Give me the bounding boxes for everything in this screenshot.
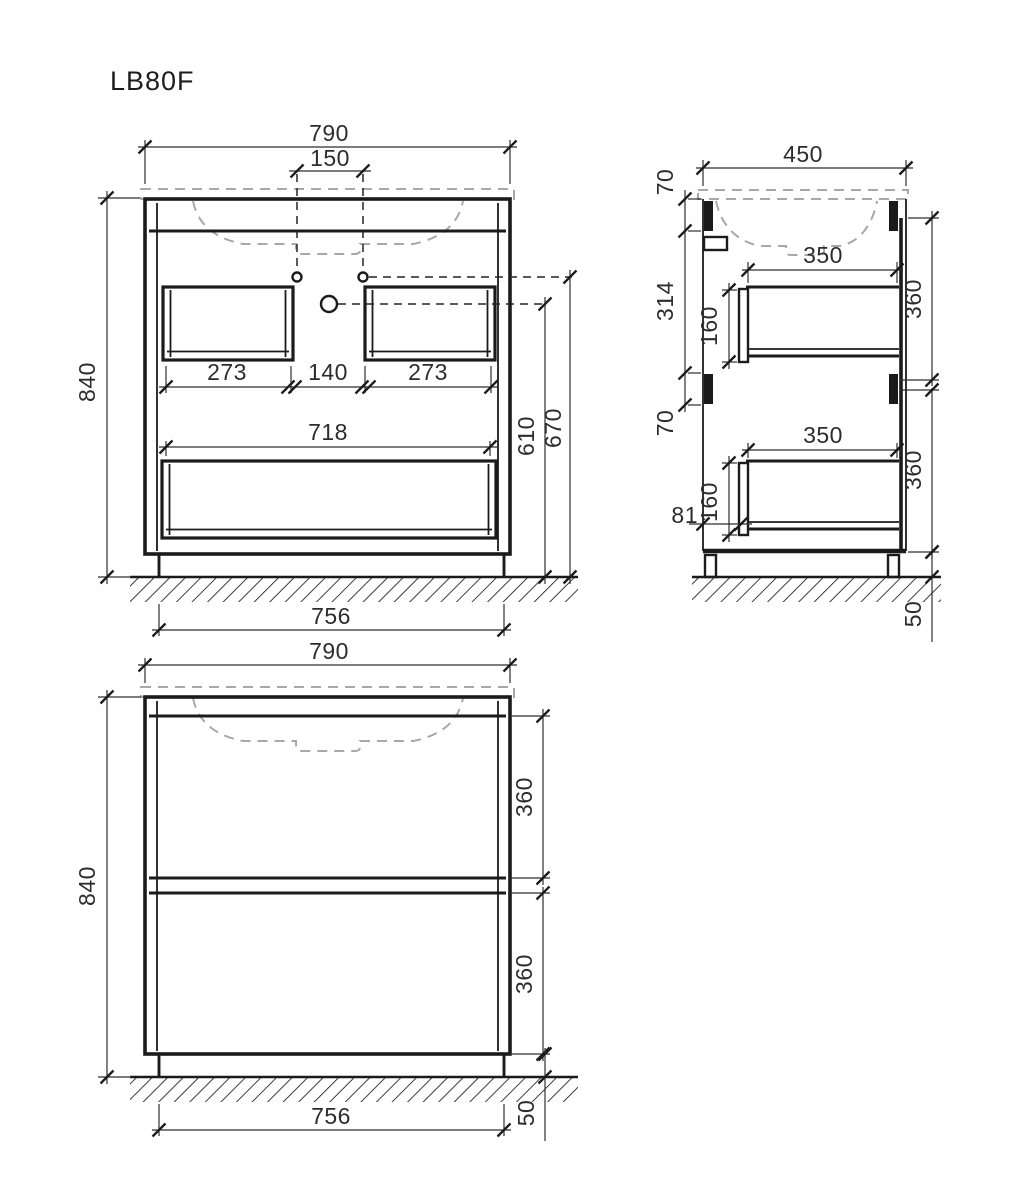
technical-drawing-page: LB80F	[0, 0, 1018, 1200]
dim-lower-drawer-width: 718	[159, 419, 497, 456]
side-view: 450 70 314 70 350 160	[652, 141, 941, 642]
svg-text:360: 360	[900, 450, 926, 490]
svg-text:670: 670	[540, 408, 566, 448]
dim-lower-drawer-depth: 350	[742, 422, 904, 458]
drawer-section-upper	[739, 287, 899, 362]
cabinet-outline	[145, 697, 510, 1054]
svg-text:50: 50	[900, 601, 926, 628]
svg-text:450: 450	[783, 141, 823, 167]
svg-text:350: 350	[803, 242, 843, 268]
dim-drawer-widths: 273 140 273	[159, 359, 498, 394]
svg-text:81: 81	[671, 502, 698, 528]
faucet-hole-left	[293, 273, 302, 282]
basin-outline	[193, 698, 463, 751]
technical-drawing-canvas: LB80F	[0, 0, 1018, 1200]
bottom-front-view: 790 840 360 360 756	[74, 638, 578, 1141]
countertop-outline	[698, 190, 908, 199]
dim-depth: 450	[696, 141, 913, 186]
dim-upper-drawer-depth: 350	[742, 242, 904, 283]
svg-text:150: 150	[310, 145, 350, 171]
svg-text:790: 790	[309, 120, 349, 146]
dim-bottom-upper-front: 360	[508, 709, 550, 885]
dim-front-height: 840	[74, 191, 140, 584]
svg-text:840: 840	[74, 362, 100, 402]
fixing-bracket	[704, 237, 727, 250]
front-view: 790 150 840 273 140 273	[74, 120, 578, 637]
basin-outline	[193, 201, 463, 254]
svg-text:350: 350	[803, 422, 843, 448]
svg-text:756: 756	[311, 603, 351, 629]
dim-front-base-span: 756	[152, 603, 511, 637]
back-mid-rail	[889, 374, 898, 404]
dim-faucet-spacing: 150	[289, 145, 371, 178]
svg-text:790: 790	[309, 638, 349, 664]
legs	[705, 555, 899, 577]
drawer-section-lower	[739, 461, 899, 535]
front-mid-rail	[704, 374, 713, 404]
dim-left-chain: 70 314 70	[652, 169, 701, 437]
dim-bottom-overall-width: 790	[138, 638, 517, 683]
drain-hole	[321, 296, 547, 312]
ground-hatch	[130, 1077, 578, 1102]
ground-hatch	[692, 577, 941, 602]
svg-text:360: 360	[900, 279, 926, 319]
model-label: LB80F	[110, 66, 195, 96]
dim-bottom-base-span: 756	[152, 1103, 511, 1137]
legs	[159, 554, 504, 577]
svg-text:360: 360	[511, 954, 537, 994]
basin-outline	[716, 201, 877, 255]
drawer-box-upper-right	[365, 287, 495, 360]
dim-bottom-height: 840	[74, 690, 141, 1084]
svg-text:840: 840	[74, 866, 100, 906]
svg-text:70: 70	[652, 169, 678, 196]
svg-text:50: 50	[513, 1100, 539, 1127]
drawer-front-split	[149, 878, 506, 893]
drawer-box-upper-left	[163, 287, 293, 360]
drawer-box-lower	[162, 461, 496, 538]
svg-text:273: 273	[207, 359, 247, 385]
svg-text:610: 610	[513, 416, 539, 456]
svg-text:360: 360	[511, 777, 537, 817]
svg-text:756: 756	[311, 1103, 351, 1129]
faucet-hole-right	[359, 273, 368, 282]
ground-hatch	[130, 577, 578, 602]
front-top-rail	[704, 201, 713, 231]
svg-text:140: 140	[308, 359, 348, 385]
faucet-holes	[293, 174, 573, 282]
svg-text:160: 160	[696, 482, 722, 522]
svg-text:314: 314	[652, 281, 678, 321]
dim-bottom-lower-front: 360	[508, 887, 550, 1062]
svg-text:70: 70	[652, 410, 678, 437]
svg-text:718: 718	[308, 419, 348, 445]
back-top-rail	[889, 201, 898, 231]
legs	[159, 1054, 504, 1077]
svg-text:273: 273	[408, 359, 448, 385]
svg-text:160: 160	[696, 306, 722, 346]
